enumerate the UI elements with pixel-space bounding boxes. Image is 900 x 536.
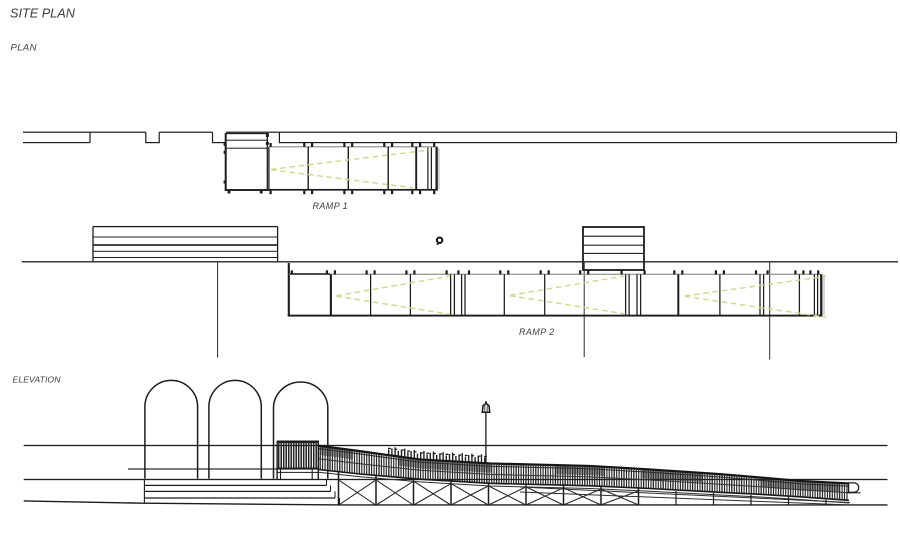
svg-text:ELEVATION: ELEVATION <box>13 375 62 385</box>
svg-text:PLAN: PLAN <box>11 43 37 54</box>
svg-text:SITE PLAN: SITE PLAN <box>10 7 76 21</box>
svg-text:RAMP 2: RAMP 2 <box>519 327 555 337</box>
svg-text:RAMP 1: RAMP 1 <box>313 201 349 211</box>
